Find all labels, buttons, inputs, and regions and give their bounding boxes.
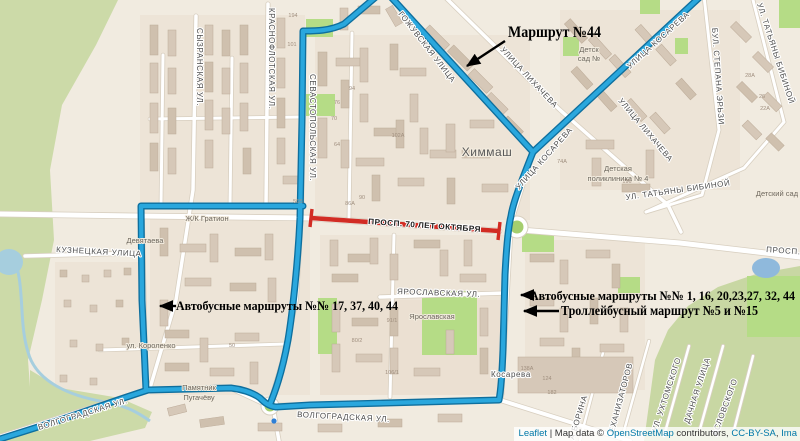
- building: [200, 338, 208, 362]
- house-number: 124: [542, 376, 551, 382]
- building: [116, 300, 123, 307]
- house-number: 64: [334, 142, 340, 148]
- building: [70, 340, 77, 347]
- place-label: Детский сад: [756, 189, 799, 198]
- stop-marker-dot: [271, 418, 276, 423]
- building: [165, 363, 189, 371]
- annotation-trolleybus-routes: Троллейбусный маршрут №5 и №15: [561, 303, 758, 318]
- house-number: 76: [334, 100, 340, 106]
- building: [150, 143, 158, 171]
- building: [341, 80, 349, 108]
- place-label: Детск: [579, 45, 599, 54]
- building: [586, 250, 610, 258]
- building: [480, 308, 488, 336]
- building: [330, 240, 338, 266]
- annotation-route-44: Маршрут №44: [508, 24, 601, 41]
- house-number: 138А: [521, 366, 534, 372]
- building: [167, 404, 186, 416]
- pond: [752, 258, 780, 278]
- license-link[interactable]: CC-BY-SA: [731, 428, 776, 439]
- building: [446, 330, 454, 354]
- building: [168, 148, 176, 174]
- building: [438, 414, 462, 422]
- building: [205, 140, 213, 168]
- building: [600, 344, 624, 352]
- place-label: Ж/К Гратион: [185, 214, 228, 223]
- house-number: 56Б: [293, 199, 303, 205]
- building: [560, 260, 568, 284]
- building: [318, 52, 327, 86]
- building: [277, 138, 285, 164]
- building: [150, 25, 158, 55]
- building: [160, 300, 168, 326]
- building: [447, 178, 455, 204]
- building: [96, 344, 103, 351]
- building: [336, 58, 360, 66]
- building: [168, 30, 176, 56]
- building: [518, 357, 633, 393]
- house-number: 28А: [745, 73, 755, 79]
- building: [64, 300, 71, 307]
- building: [332, 344, 340, 372]
- building: [372, 175, 380, 201]
- place-label: Пугачёву: [183, 393, 215, 402]
- building: [200, 416, 225, 427]
- street-label: СЫЗРАНСКАЯ УЛ.: [195, 28, 204, 106]
- house-number: 102А: [392, 133, 405, 139]
- building: [168, 68, 176, 94]
- building: [360, 48, 368, 82]
- building: [104, 270, 111, 277]
- park-area: [640, 0, 660, 14]
- road: [230, 58, 232, 206]
- building: [360, 94, 368, 122]
- building: [210, 368, 234, 376]
- building: [470, 120, 494, 128]
- building: [60, 375, 67, 382]
- annotation-left-bus-routes: Автобусные маршруты №№ 17, 37, 40, 44: [176, 298, 398, 313]
- building: [586, 140, 614, 149]
- building: [540, 338, 564, 346]
- building: [180, 244, 206, 252]
- building: [235, 333, 259, 341]
- leaflet-attribution: Leaflet | Map data © OpenStreetMap contr…: [514, 427, 800, 441]
- building: [352, 318, 378, 326]
- building: [222, 68, 230, 94]
- building: [318, 424, 342, 432]
- map-screenshot: СЫЗРАНСКАЯ УЛ.КРАСНОФЛОТСКАЯ УЛ.СЕВАСТОП…: [0, 0, 800, 441]
- leaflet-link[interactable]: Leaflet: [519, 428, 548, 439]
- house-number: 80/2: [352, 338, 363, 344]
- building: [390, 254, 398, 280]
- openstreetmap-link[interactable]: OpenStreetMap: [607, 428, 674, 439]
- building: [480, 348, 488, 374]
- place-label: Детская: [604, 164, 632, 173]
- building: [440, 250, 448, 276]
- building: [205, 25, 213, 55]
- building: [205, 100, 213, 130]
- house-number: 91/1: [387, 318, 398, 324]
- building: [277, 58, 285, 88]
- building: [222, 30, 230, 56]
- place-label: Памятник: [182, 383, 217, 392]
- building: [150, 103, 158, 133]
- building: [410, 94, 418, 122]
- house-number: 22А: [760, 106, 770, 112]
- house-number: 101: [287, 42, 296, 48]
- building: [390, 44, 398, 70]
- building: [356, 158, 384, 166]
- house-number: 90: [359, 195, 365, 201]
- residential-area: [55, 262, 145, 390]
- building: [414, 368, 440, 376]
- building: [318, 118, 327, 158]
- building: [243, 148, 251, 174]
- building: [530, 254, 554, 262]
- building: [250, 362, 258, 384]
- building: [258, 423, 282, 431]
- building: [742, 120, 762, 140]
- building: [460, 274, 486, 282]
- imagery-link[interactable]: Ima: [781, 428, 797, 439]
- building: [168, 108, 176, 134]
- place-label: ул. Короленко: [126, 341, 175, 350]
- house-number: 94: [349, 86, 355, 92]
- street-label: СЕВАСТОПОЛЬСКАЯ УЛ.: [308, 74, 317, 181]
- building: [240, 103, 248, 131]
- street-label: КРАСНОФЛОТСКАЯ УЛ.: [267, 8, 276, 109]
- building: [398, 178, 424, 186]
- building: [464, 240, 472, 266]
- building: [235, 248, 261, 256]
- house-number: 26: [759, 94, 765, 100]
- building: [240, 63, 248, 93]
- place-label: Девятаева: [127, 236, 165, 245]
- building: [277, 98, 285, 128]
- building: [124, 268, 131, 275]
- place-label: Ярославская: [409, 312, 454, 321]
- attribution-text: contributors,: [674, 428, 732, 439]
- building: [60, 270, 67, 277]
- place-label: сад №: [578, 54, 600, 63]
- park-area: [675, 38, 688, 54]
- building: [370, 238, 378, 264]
- street-label: ВОЛГОГРАДСКАЯ УЛ.: [297, 410, 390, 424]
- house-number: 196: [622, 179, 631, 185]
- building: [414, 240, 440, 248]
- building: [341, 140, 349, 168]
- building: [265, 234, 273, 260]
- building: [230, 283, 256, 291]
- place-label: Химмаш: [462, 145, 513, 159]
- road: [161, 55, 163, 205]
- house-number: 106/1: [385, 370, 399, 376]
- building: [90, 378, 97, 385]
- house-number: 86А: [345, 201, 355, 207]
- house-number: 70: [331, 116, 337, 122]
- house-number: 50: [229, 343, 235, 349]
- building: [185, 278, 211, 286]
- annotation-right-bus-routes: Автобусные маршруты №№ 1, 16, 20,23,27, …: [530, 288, 795, 303]
- building: [420, 128, 428, 154]
- house-number: 182: [547, 390, 556, 396]
- building: [210, 234, 218, 262]
- map-canvas[interactable]: СЫЗРАНСКАЯ УЛ.КРАСНОФЛОТСКАЯ УЛ.СЕВАСТОП…: [0, 0, 800, 441]
- building: [332, 274, 358, 282]
- building: [283, 176, 299, 184]
- place-label: поликлиника № 4: [588, 174, 649, 183]
- building: [222, 108, 230, 134]
- building: [150, 63, 158, 93]
- building: [356, 354, 382, 362]
- building: [400, 68, 426, 76]
- building: [240, 25, 248, 55]
- building: [482, 184, 508, 192]
- house-number: 194: [288, 13, 297, 19]
- building: [82, 275, 89, 282]
- building: [165, 330, 189, 338]
- building: [205, 62, 213, 92]
- attribution-text: | Map data ©: [547, 428, 607, 439]
- building: [277, 18, 285, 48]
- building: [446, 124, 455, 152]
- building: [612, 264, 620, 288]
- park-area: [779, 0, 800, 28]
- building: [90, 305, 97, 312]
- house-number: 74А: [557, 159, 567, 165]
